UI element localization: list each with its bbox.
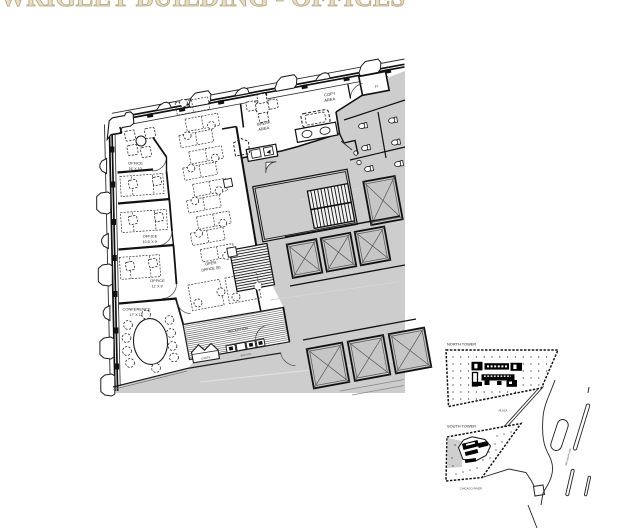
svg-text:CHICAGO RIVER: CHICAGO RIVER bbox=[460, 487, 482, 491]
svg-text:17' X 14': 17' X 14' bbox=[130, 313, 144, 317]
svg-text:OFFICE: OFFICE bbox=[128, 161, 143, 166]
svg-text:PLAZA: PLAZA bbox=[499, 409, 508, 413]
svg-text:OFFICE: OFFICE bbox=[143, 234, 158, 239]
svg-text:11' X 9': 11' X 9' bbox=[152, 285, 164, 289]
svg-text:CONFERENCE: CONFERENCE bbox=[122, 307, 150, 312]
svg-text:16' X 10': 16' X 10' bbox=[129, 167, 143, 171]
svg-text:OFFICE: OFFICE bbox=[150, 278, 165, 283]
svg-text:WRIGLEY BUILDING - OFFICES: WRIGLEY BUILDING - OFFICES bbox=[0, 0, 405, 12]
svg-text:SOUTH TOWER: SOUTH TOWER bbox=[447, 424, 476, 429]
svg-text:NORTH TOWER: NORTH TOWER bbox=[447, 342, 476, 347]
svg-text:10.5' X 9': 10.5' X 9' bbox=[143, 240, 158, 244]
